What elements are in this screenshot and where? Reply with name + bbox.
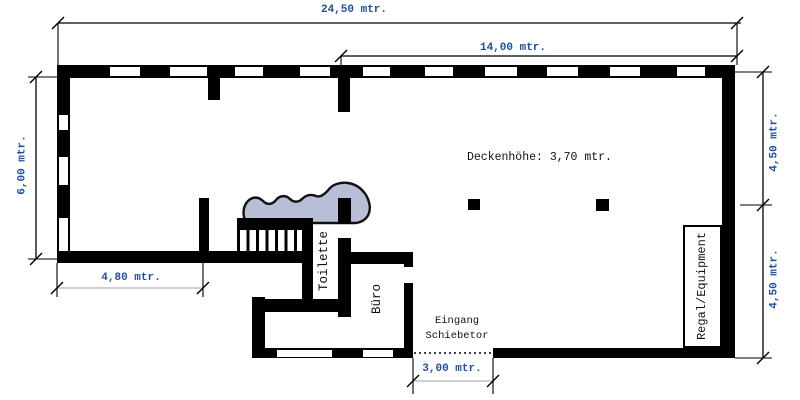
dim-label-entrance-width: 3,00 mtr. — [402, 363, 502, 376]
window-top-10 — [677, 65, 705, 78]
ceiling-height-note: Deckenhöhe: 3,70 mtr. — [467, 151, 612, 165]
window-top-2 — [170, 65, 207, 78]
window-top-8 — [547, 65, 578, 78]
wall-toilet-right-upper — [338, 198, 351, 224]
wall-interior-partial — [199, 198, 209, 263]
window-top-7 — [485, 65, 517, 78]
office-label: Büro — [370, 284, 384, 314]
column-2 — [596, 199, 609, 211]
window-top-1 — [110, 65, 140, 78]
floor-plan: 24,50 mtr. 14,00 mtr. 6,00 mtr. 4,80 mtr… — [0, 0, 800, 400]
entrance-label: Eingang Schiebetor — [403, 314, 511, 344]
column-1 — [468, 199, 480, 210]
window-left-3 — [57, 218, 70, 251]
entrance-label-line1: Eingang — [403, 314, 511, 329]
window-top-9 — [610, 65, 640, 78]
shelf-label: Regal/Equipment — [695, 232, 709, 340]
window-vestibule-2 — [363, 348, 393, 358]
dim-label-right-upper-height: 4,50 mtr. — [769, 112, 782, 171]
wall-right — [722, 65, 735, 358]
window-top-6 — [425, 65, 453, 78]
window-top-4 — [300, 65, 330, 78]
dim-label-upper-right-width: 14,00 mtr. — [458, 42, 568, 55]
dimension-line-layer — [0, 0, 800, 400]
toilet-label: Toilette — [317, 231, 331, 291]
wall-stub-1 — [208, 78, 220, 100]
dim-label-right-lower-height: 4,50 mtr. — [769, 249, 782, 308]
wall-vestibule-top — [252, 299, 351, 312]
extension-lines — [28, 23, 772, 394]
wall-stub-2 — [338, 78, 350, 112]
wall-bottom-hall — [493, 348, 735, 358]
window-top-3 — [235, 65, 263, 78]
dim-label-left-height: 6,00 mtr. — [17, 135, 30, 194]
wall-office-right-upper — [404, 252, 413, 267]
window-top-5 — [363, 65, 390, 78]
window-left-2 — [57, 157, 70, 185]
window-left-1 — [57, 115, 70, 130]
dim-label-total-width: 24,50 mtr. — [299, 4, 409, 17]
entrance-label-line2: Schiebetor — [403, 329, 511, 344]
stair-treads — [237, 230, 304, 253]
window-vestibule-1 — [277, 348, 332, 358]
dim-label-lower-left-width: 4,80 mtr. — [81, 272, 181, 285]
